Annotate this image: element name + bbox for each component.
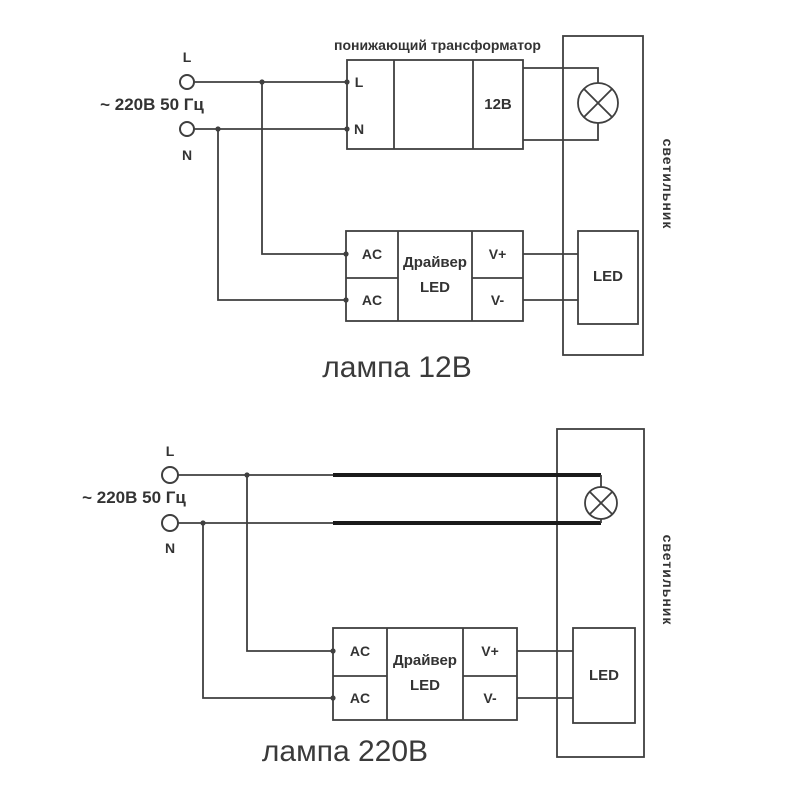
driver-ac1-label: AC (333, 643, 387, 659)
source-voltage-label: ~ 220В 50 Гц (74, 488, 194, 508)
luminaire-label: светильник (660, 134, 676, 234)
terminal-n-icon (162, 515, 178, 531)
luminaire-label: светильник (660, 530, 676, 630)
transformer-input-l: L (350, 74, 368, 90)
terminal-l-label: L (160, 443, 180, 459)
transformer-output-label: 12В (473, 96, 523, 114)
diagram-12v-wiring (180, 36, 643, 355)
junction-dot (215, 126, 220, 131)
junction-dot (259, 79, 264, 84)
wire-n-to-driver (203, 523, 333, 698)
driver-vminus-label: V- (472, 292, 523, 308)
diagram-caption-220v: лампа 220В (245, 736, 445, 768)
driver-vminus-label: V- (463, 690, 517, 706)
source-voltage-label: ~ 220В 50 Гц (87, 95, 217, 115)
driver-name: Драйвер LED (398, 250, 472, 300)
terminal-l-icon (162, 467, 178, 483)
junction-dot (344, 79, 349, 84)
terminal-n-label: N (160, 540, 180, 556)
driver-name: Драйвер LED (387, 648, 463, 698)
driver-ac2-label: AC (333, 690, 387, 706)
led-label: LED (578, 268, 638, 286)
led-label: LED (573, 667, 635, 685)
driver-ac1-label: AC (346, 246, 398, 262)
junction-dot (344, 126, 349, 131)
driver-vplus-label: V+ (463, 643, 517, 659)
driver-name-line1: Драйвер (393, 652, 457, 669)
transformer-title: понижающий трансформатор (334, 37, 534, 53)
junction-dot (244, 472, 249, 477)
terminal-l-label: L (177, 49, 197, 65)
wire-transformer-to-lamp-top (523, 68, 598, 84)
terminal-n-icon (180, 122, 194, 136)
wire-l-to-driver (247, 475, 333, 651)
driver-name-line2: LED (410, 677, 440, 694)
wire-n-to-driver (218, 129, 346, 300)
driver-vplus-label: V+ (472, 246, 523, 262)
driver-name-line1: Драйвер (403, 254, 467, 271)
wiring-diagram-canvas: ~ 220В 50 Гц L N понижающий трансформато… (0, 0, 800, 800)
wire-transformer-to-lamp-bottom (523, 122, 598, 140)
diagram-220v-wiring (162, 429, 644, 757)
driver-name-line2: LED (420, 279, 450, 296)
driver-ac2-label: AC (346, 292, 398, 308)
terminal-l-icon (180, 75, 194, 89)
junction-dot (200, 520, 205, 525)
wire-l-to-driver (262, 82, 346, 254)
transformer-input-n: N (350, 121, 368, 137)
diagram-caption-12v: лампа 12В (297, 352, 497, 384)
terminal-n-label: N (177, 147, 197, 163)
